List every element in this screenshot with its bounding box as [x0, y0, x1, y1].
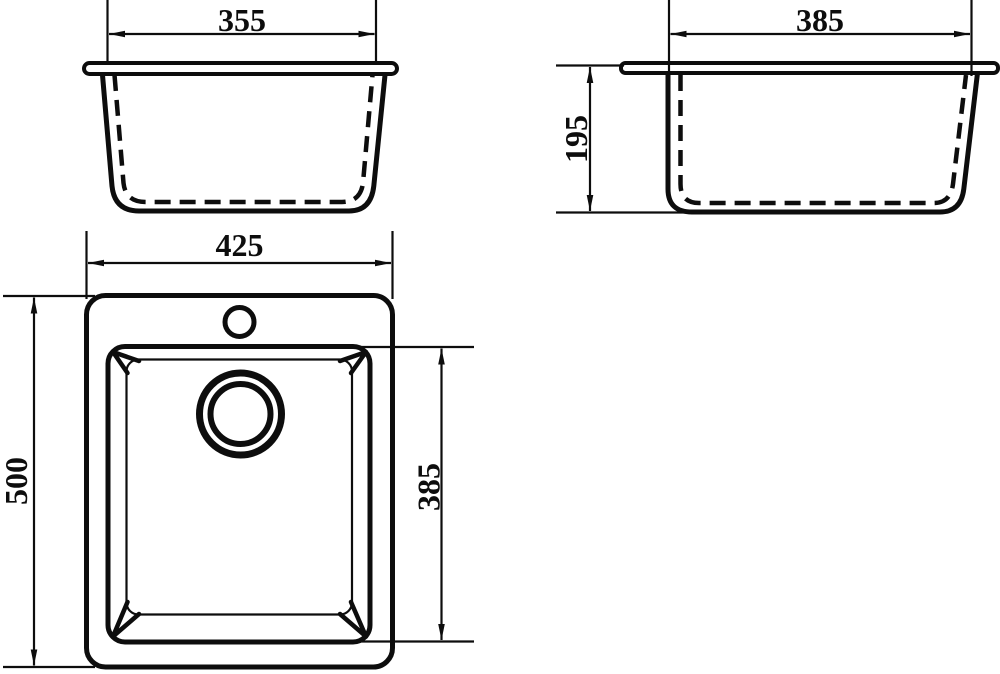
plan-bowl-dimension-label: 385 [411, 463, 447, 511]
side-depth-dimension-label: 195 [558, 115, 594, 163]
sink-dimension-drawing: 355 385 195 425 500 [0, 0, 1000, 674]
side-width-dimension-label: 385 [796, 2, 844, 38]
plan-width-dimension-label: 425 [216, 227, 264, 263]
front-view: 355 [84, 0, 397, 211]
front-width-dimension-label: 355 [218, 2, 266, 38]
faucet-hole [225, 308, 254, 337]
front-rim [84, 63, 397, 74]
drawing-canvas: 355 385 195 425 500 [0, 0, 1000, 674]
side-body-outline [668, 73, 978, 212]
front-body-outline [103, 75, 386, 211]
side-rim [621, 63, 998, 73]
plan-length-dimension-label: 500 [0, 457, 34, 505]
side-view: 385 195 [556, 0, 998, 213]
plan-view: 425 500 385 [0, 227, 474, 667]
